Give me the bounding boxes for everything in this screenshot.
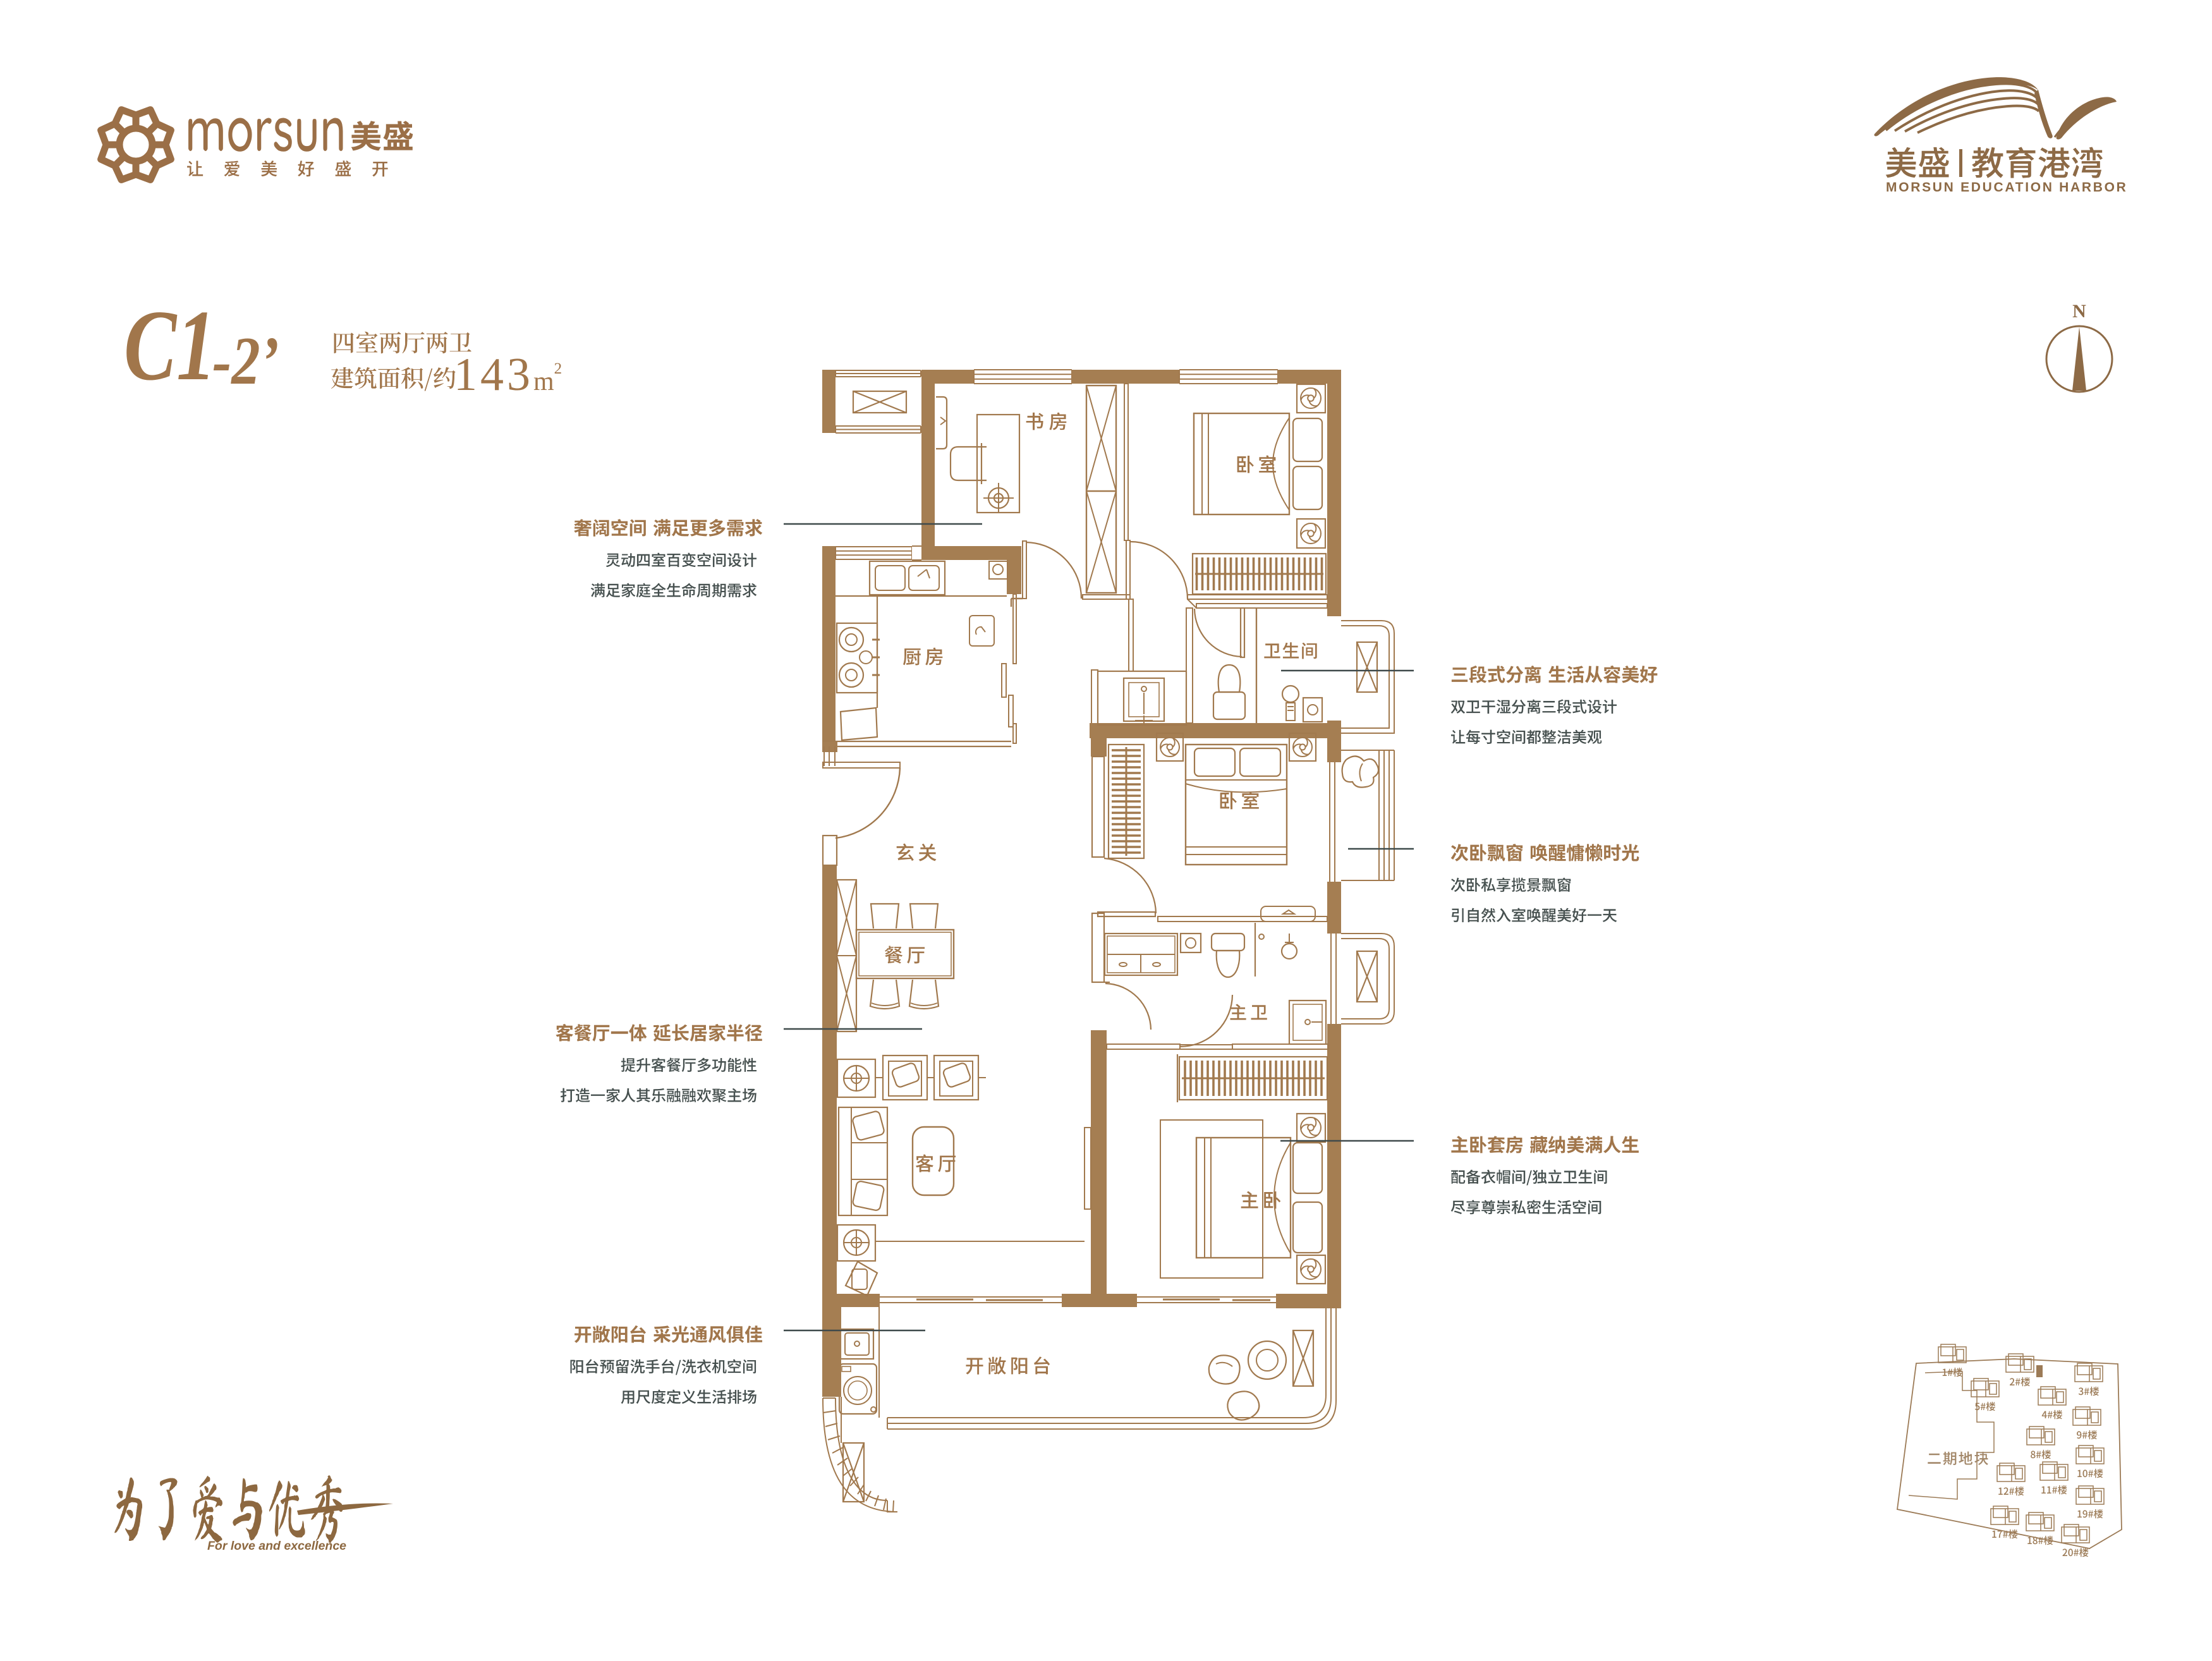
svg-text:C1: C1	[124, 289, 216, 401]
svg-text:For love and excellence: For love and excellence	[207, 1539, 346, 1553]
svg-text:N: N	[2072, 301, 2086, 322]
svg-text:MORSUN EDUCATION HARBOR: MORSUN EDUCATION HARBOR	[1886, 180, 2128, 195]
svg-text:-2’: -2’	[212, 323, 279, 399]
